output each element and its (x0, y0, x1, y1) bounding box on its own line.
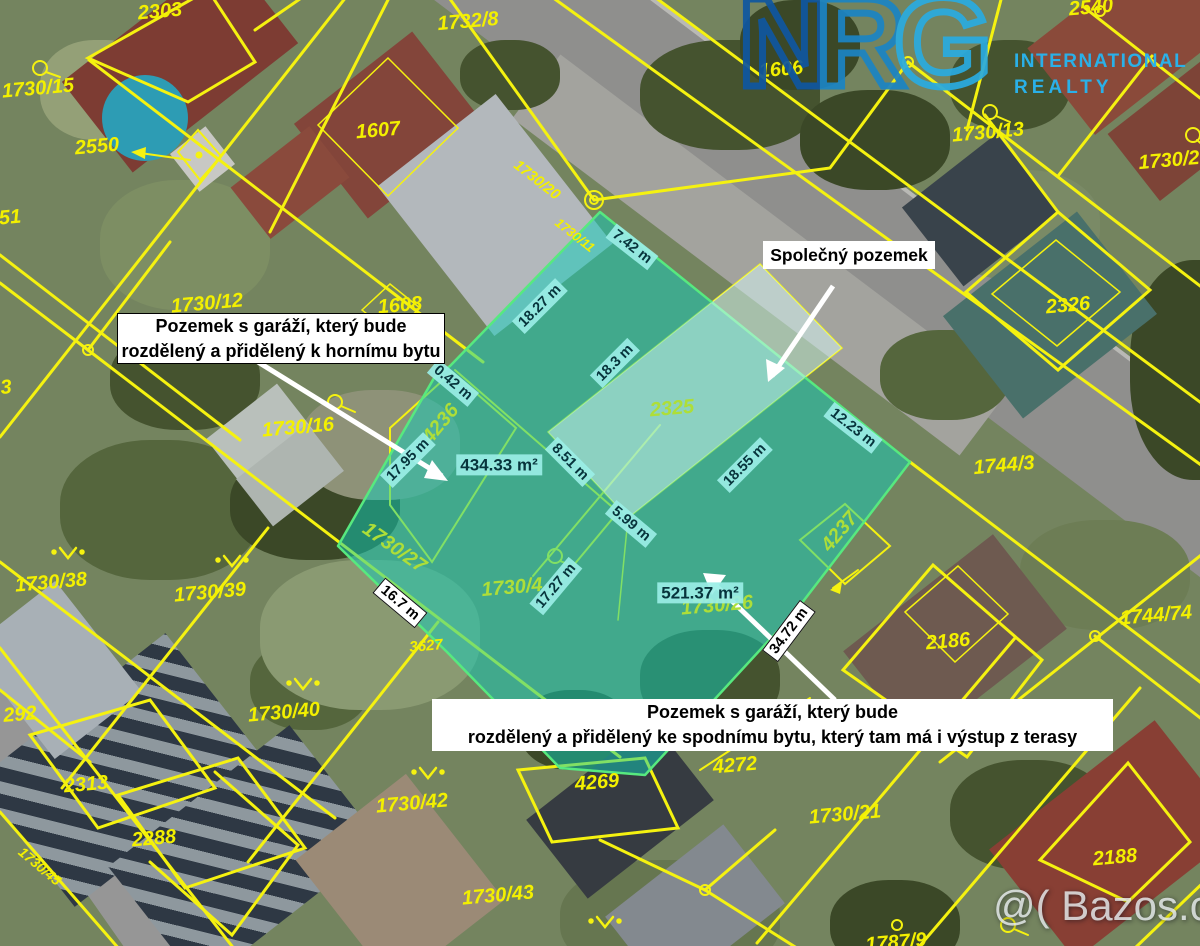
bazos-watermark: @( Bazos.cz (993, 882, 1200, 930)
callout-lower-line2: rozdělený a přidělený ke spodnímu bytu, … (432, 725, 1113, 750)
logo-international: INTERNATIONAL (1014, 51, 1187, 73)
callout-common-text: Společný pozemek (763, 243, 935, 267)
callout-upper-flat: Pozemek s garáží, který bude rozdělený a… (117, 313, 445, 364)
aerial-cadastral-map: 23031732/81730/1525501607254016061730/20… (0, 0, 1200, 946)
callout-lower-line1: Pozemek s garáží, který bude (432, 700, 1113, 725)
callout-common-land: Společný pozemek (763, 241, 935, 269)
callout-lower-flat: Pozemek s garáží, který bude rozdělený a… (432, 699, 1113, 751)
logo-realty: REALTY (1014, 77, 1113, 99)
callout-upper-line1: Pozemek s garáží, který bude (118, 314, 444, 339)
cadastral-overlay (0, 0, 1200, 946)
nrg-logo: N R G (738, 0, 992, 106)
logo-letter-r: R (815, 0, 906, 106)
logo-letter-g: G (894, 0, 992, 106)
callout-upper-line2: rozdělený a přidělený k hornímu bytu (118, 339, 444, 364)
